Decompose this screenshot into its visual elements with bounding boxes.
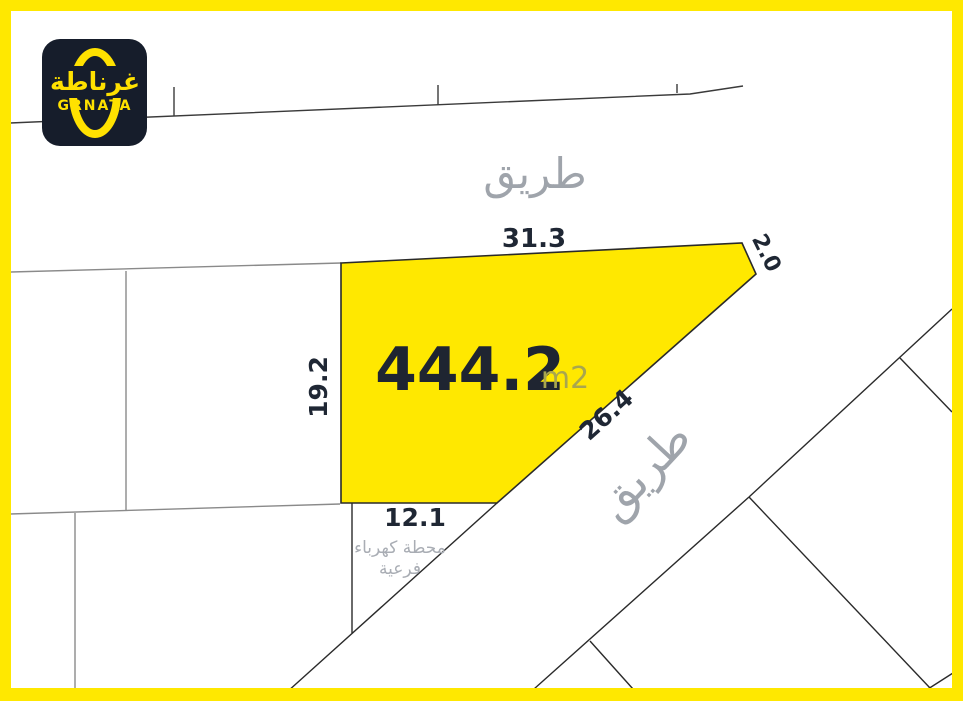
plot-map-page: { "brand": { "name_en": "GRNATA", "name_… (0, 0, 963, 701)
plot-area-value: 444.2 (375, 335, 565, 405)
substation-label-line1: محطة كهرباء (354, 538, 446, 558)
logo-latin-wordmark: GRNATA (57, 98, 132, 114)
road-label-top: طريق (483, 149, 586, 198)
dimension-bottom: 12.1 (384, 503, 446, 532)
dimension-top: 31.3 (502, 224, 566, 254)
frame-top (0, 0, 963, 11)
grnata-logo-art: غرناطة GRNATA (42, 39, 147, 146)
frame-right (952, 0, 963, 701)
logo-arabic-wordmark: غرناطة (50, 67, 140, 97)
dimension-left: 19.2 (304, 356, 333, 418)
frame-bottom (0, 688, 963, 701)
grnata-logo: غرناطة GRNATA (42, 39, 147, 146)
substation-label-line2: فرعية (379, 559, 421, 579)
frame-left (0, 0, 11, 701)
plot-area-unit: m2 (541, 361, 589, 396)
